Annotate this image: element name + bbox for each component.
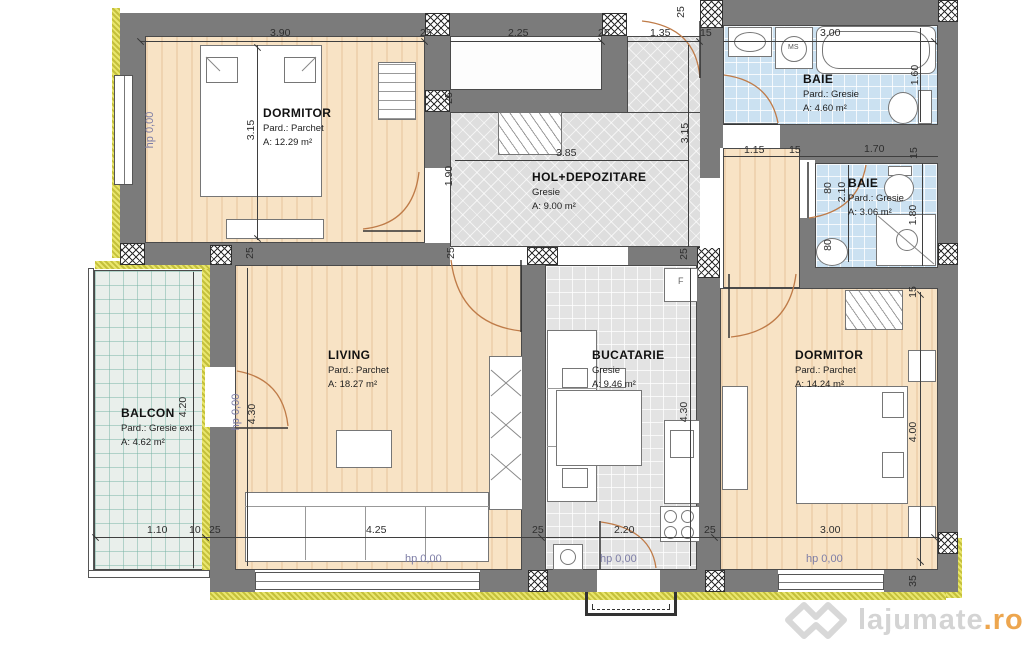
wall-bedroom1-right-b [425, 112, 450, 168]
room-area: A: 9.00 m² [532, 201, 646, 212]
room-area: A: 14.24 m² [795, 379, 863, 390]
room-label-living: LIVING Pard.: Parchet A: 18.27 m² [328, 348, 389, 390]
wall-closet-bottom [450, 90, 627, 112]
room-label-bathroom-1: BAIE Pard.: Gresie A: 4.60 m² [803, 72, 859, 114]
level-label: hp 0,00 [600, 553, 637, 565]
dim-label: 4.30 [246, 404, 258, 424]
dim-line [922, 163, 923, 266]
wall-bathroom2-left-b [800, 218, 815, 268]
balcony-glazing-left [88, 268, 94, 578]
niche-passage-opening [700, 178, 720, 248]
wardrobe [845, 290, 903, 330]
dim-label: 1.70 [864, 143, 884, 155]
level-label: hp 0,00 [806, 553, 843, 565]
dim-line [723, 156, 938, 157]
room-name: BAIE [803, 72, 859, 86]
washing-machine-label: MS [788, 44, 799, 51]
dim-label: 1.80 [907, 205, 919, 225]
dim-label: 4.25 [366, 524, 386, 536]
wall-bedroom1-bottom [145, 243, 450, 265]
wall-bottom-d [660, 570, 705, 592]
wall-bottom-c [548, 570, 597, 592]
dim-line [455, 160, 688, 161]
window-bedroom1 [114, 75, 133, 185]
room-name: DORMITOR [795, 348, 863, 362]
kitchen-passage-opening [558, 247, 628, 265]
dim-label: 2.20 [614, 524, 634, 536]
room-name: HOL+DEPOZITARE [532, 170, 646, 184]
tv-shelf-unit [489, 356, 523, 510]
window-living [255, 572, 480, 590]
pillow [882, 452, 904, 478]
dim-label: 3.00 [820, 524, 840, 536]
room-area: A: 4.62 m² [121, 437, 195, 448]
room-area: A: 18.27 m² [328, 379, 389, 390]
wall-bottom-a [235, 570, 255, 592]
boiler-dial [560, 549, 576, 565]
dim-line [257, 45, 258, 240]
watermark-tld: .ro [984, 604, 1024, 636]
room-label-hall: HOL+DEPOZITARE Gresie A: 9.00 m² [532, 170, 646, 212]
wall-bathroom2-left-a [800, 148, 815, 160]
wall-bottom-b [480, 570, 528, 592]
dim-label: 10 [189, 524, 201, 536]
pillow [882, 392, 904, 418]
dim-label: 80 [822, 239, 834, 251]
room-area: A: 4.60 m² [803, 103, 859, 114]
dim-label: 25 [675, 6, 687, 18]
stove-burner [681, 510, 694, 523]
watermark: lajumate.ro [780, 598, 1024, 642]
dim-label: 35 [907, 575, 919, 587]
room-name: DORMITOR [263, 106, 331, 120]
dim-line [95, 537, 938, 538]
room-label-bedroom-1: DORMITOR Pard.: Parchet A: 12.29 m² [263, 106, 331, 148]
room-floor-type: Pard.: Parchet [263, 123, 331, 134]
floor-niche [723, 148, 800, 288]
wall-right [938, 22, 958, 592]
dim-label: 2.10 [836, 182, 848, 202]
fridge-label: F [678, 276, 684, 286]
dim-label: 3.00 [820, 27, 840, 39]
watermark-logo-icon [780, 598, 854, 642]
dim-line [140, 41, 425, 42]
nightstand [908, 350, 936, 382]
pillow [206, 57, 238, 83]
floor-storage-closet [450, 36, 602, 90]
dim-label: 1.15 [744, 144, 764, 156]
room-floor-type: Pard.: Gresie [803, 89, 859, 100]
wall-pillar [938, 243, 958, 265]
level-label: hp 0,00 [230, 394, 242, 431]
dim-label: 25 [704, 524, 716, 536]
dim-line [627, 41, 700, 42]
sofa-back-line [245, 506, 489, 507]
chair [562, 368, 588, 388]
wall-pillar [528, 570, 548, 592]
dim-label: 80 [822, 182, 834, 194]
sink-basin [734, 32, 766, 52]
living-door-opening [450, 247, 527, 265]
dim-label: 25 [532, 524, 544, 536]
dresser [722, 386, 748, 490]
watermark-name: lajumate [858, 604, 984, 636]
wall-closet-right [602, 36, 627, 90]
wardrobe [498, 112, 562, 155]
coffee-table [336, 430, 392, 468]
wall-pillar [210, 245, 232, 265]
room-name: BALCON [121, 406, 195, 420]
bottom-entrance-opening [597, 570, 660, 592]
kitchen-table [556, 390, 642, 466]
dim-label: 15 [908, 147, 920, 159]
wall-pillar [938, 532, 958, 554]
wall-pillar [938, 0, 958, 22]
wall-hall-niche-a [700, 148, 720, 178]
dim-label: 1.10 [147, 524, 167, 536]
chair [562, 468, 588, 488]
dim-label: 4.00 [907, 422, 919, 442]
dim-line [688, 45, 689, 247]
wall-corridor-right [700, 28, 723, 148]
pillow [284, 57, 316, 83]
room-floor-type: Pard.: Gresie [848, 193, 904, 204]
level-label: hp 0,00 [405, 553, 442, 565]
dim-label: 3.15 [245, 120, 257, 140]
wall-top-bathroom [723, 0, 938, 25]
dim-label: 15 [700, 27, 712, 39]
dim-label: 15 [789, 144, 801, 156]
dim-label: 1.60 [909, 65, 921, 85]
watermark-text: lajumate.ro [858, 604, 1024, 637]
floor-plan: MS F [0, 0, 1024, 646]
room-area: A: 12.29 m² [263, 137, 331, 148]
room-area: A: 9.46 m² [592, 379, 664, 390]
sofa-cushion-line [305, 506, 306, 560]
dim-label: 25 [209, 524, 221, 536]
dim-label: 2.25 [508, 27, 528, 39]
dim-label: 25 [420, 27, 432, 39]
wall-bottom-e [725, 570, 778, 592]
window-bedroom2 [778, 574, 884, 590]
dim-label: 25 [678, 248, 690, 260]
stove-burner [664, 510, 677, 523]
dim-label: 1.35 [650, 27, 670, 39]
balcony-glazing-bottom [88, 570, 210, 578]
dim-label: 1.90 [443, 166, 455, 186]
room-label-kitchen: BUCATARIE Gresie A: 9.46 m² [592, 348, 664, 390]
dresser [226, 219, 324, 239]
wall-pillar [700, 0, 723, 28]
dim-label: 25 [443, 92, 455, 104]
wall-bathroom1-bottom [780, 125, 938, 148]
room-area: A: 3.06 m² [848, 207, 904, 218]
counter-divider [547, 388, 597, 389]
toilet [888, 92, 918, 124]
dim-label: 3.90 [270, 27, 290, 39]
dim-label: 25 [598, 27, 610, 39]
room-floor-type: Pard.: Parchet [795, 365, 863, 376]
dim-label: 3.85 [556, 147, 576, 159]
dim-label: 3.15 [679, 123, 691, 143]
wall-pillar [120, 243, 145, 265]
wall-pillar [697, 247, 720, 278]
dim-label: 25 [445, 247, 457, 259]
shower-drain [896, 229, 918, 251]
wall-pillar [527, 247, 558, 265]
room-name: BUCATARIE [592, 348, 664, 362]
room-floor-type: Gresie [592, 365, 664, 376]
room-label-bathroom-2: BAIE Pard.: Gresie A: 3.06 m² [848, 176, 904, 218]
room-floor-type: Gresie [532, 187, 646, 198]
dim-line [450, 41, 602, 42]
dim-line [690, 268, 691, 566]
level-label: hp 0,00 [144, 112, 156, 149]
dim-line [723, 41, 936, 42]
room-label-balcony: BALCON Pard.: Gresie ext. A: 4.62 m² [121, 406, 195, 448]
room-name: BAIE [848, 176, 904, 190]
dim-label: 4.30 [678, 402, 690, 422]
dim-label: 25 [244, 247, 256, 259]
entrance-step [585, 592, 677, 616]
room-label-bedroom-2: DORMITOR Pard.: Parchet A: 14.24 m² [795, 348, 863, 390]
room-floor-type: Pard.: Parchet [328, 365, 389, 376]
wall-pillar [705, 570, 725, 592]
wall-bedroom1-right-a [425, 36, 450, 90]
shelf-unit [378, 62, 416, 120]
room-name: LIVING [328, 348, 389, 362]
room-floor-type: Pard.: Gresie ext. [121, 423, 195, 434]
dim-line [920, 292, 921, 566]
bathroom2-door-opening [800, 160, 815, 218]
dim-label: 15 [907, 286, 919, 298]
sofa-cushion-line [425, 506, 426, 560]
